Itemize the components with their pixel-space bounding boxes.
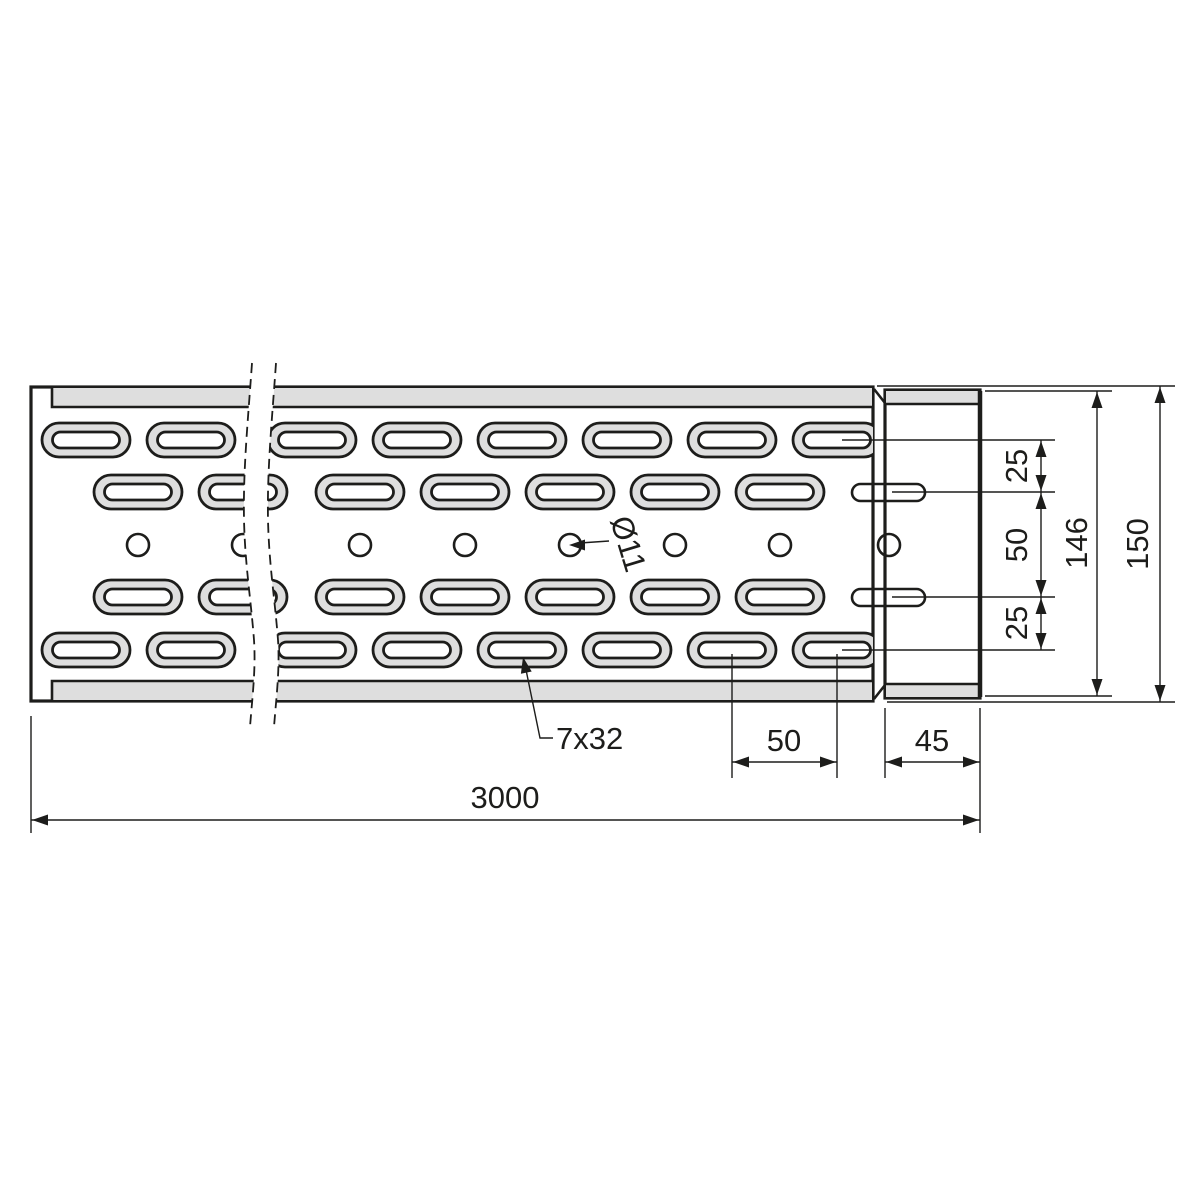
arrowhead [963, 757, 979, 768]
tray-body [31, 387, 881, 701]
arrowhead [886, 757, 902, 768]
slot-hole [631, 580, 719, 614]
dim-slot-pitch-50: 50 [732, 654, 837, 778]
dim-text-45: 45 [915, 723, 949, 758]
slot-hole [42, 633, 130, 667]
joint-chamfer-top [874, 389, 885, 403]
end-coupler-top-band [886, 391, 979, 404]
arrowhead [1155, 685, 1166, 701]
dim-text-150: 150 [1120, 518, 1155, 570]
slot-hole [583, 423, 671, 457]
round-hole [349, 534, 371, 556]
slot-hole [373, 423, 461, 457]
label-slot-size: 7x32 [521, 657, 623, 756]
arrowhead [1036, 633, 1047, 649]
break-lines [244, 363, 279, 727]
tray-bottom-flange [52, 681, 872, 700]
arrowhead [963, 815, 979, 826]
arrowhead [1036, 580, 1047, 596]
round-hole [878, 534, 900, 556]
arrowhead [1092, 392, 1103, 408]
slot-hole [147, 423, 235, 457]
slot-hole [316, 475, 404, 509]
arrowhead [1036, 441, 1047, 457]
round-hole [769, 534, 791, 556]
break-band [244, 363, 279, 727]
arrowhead [733, 757, 749, 768]
arrowhead [820, 757, 836, 768]
cable-tray-technical-drawing: 25 50 25 146 150 50 45 [0, 0, 1200, 1200]
dim-text-25-bottom: 25 [999, 606, 1034, 640]
arrowhead [32, 815, 48, 826]
arrowhead [569, 540, 585, 551]
slot-hole [736, 580, 824, 614]
slot-hole [631, 475, 719, 509]
slot-hole [526, 580, 614, 614]
dim-text-50-pitch: 50 [767, 723, 801, 758]
dim-text-146: 146 [1059, 517, 1094, 569]
perforation-pattern [42, 423, 881, 667]
slot-hole [478, 423, 566, 457]
arrowhead [1155, 387, 1166, 403]
slot-hole [421, 475, 509, 509]
dim-text-25-top: 25 [999, 449, 1034, 483]
slot-hole [199, 475, 287, 509]
joint-chamfer-bottom [874, 685, 885, 699]
slot-hole [94, 475, 182, 509]
slot-hole [421, 580, 509, 614]
round-hole [127, 534, 149, 556]
round-hole [664, 534, 686, 556]
slot-hole [736, 475, 824, 509]
arrowhead [1092, 679, 1103, 695]
slot-hole [583, 633, 671, 667]
slot-hole [94, 580, 182, 614]
slot-hole [688, 423, 776, 457]
arrowhead [1036, 598, 1047, 614]
slot-hole [478, 633, 566, 667]
slot-hole [526, 475, 614, 509]
end-coupler-bottom-band [886, 684, 979, 697]
dim-text-3000: 3000 [471, 780, 540, 815]
slot-hole [268, 633, 356, 667]
label-hole-dia: Ø11 [569, 512, 653, 576]
round-hole [454, 534, 476, 556]
drawing-canvas: 25 50 25 146 150 50 45 [0, 0, 1200, 1200]
slot-hole [268, 423, 356, 457]
label-text-7x32: 7x32 [556, 721, 623, 756]
slot-hole [42, 423, 130, 457]
arrowhead [1036, 475, 1047, 491]
dim-end-width-45: 45 [885, 708, 980, 833]
label-text-dia11: Ø11 [603, 512, 653, 576]
tray-top-flange [52, 388, 872, 407]
arrowhead [1036, 493, 1047, 509]
dim-text-50-mid: 50 [999, 528, 1034, 562]
slot-hole [316, 580, 404, 614]
slot-hole [147, 633, 235, 667]
slot-hole [373, 633, 461, 667]
